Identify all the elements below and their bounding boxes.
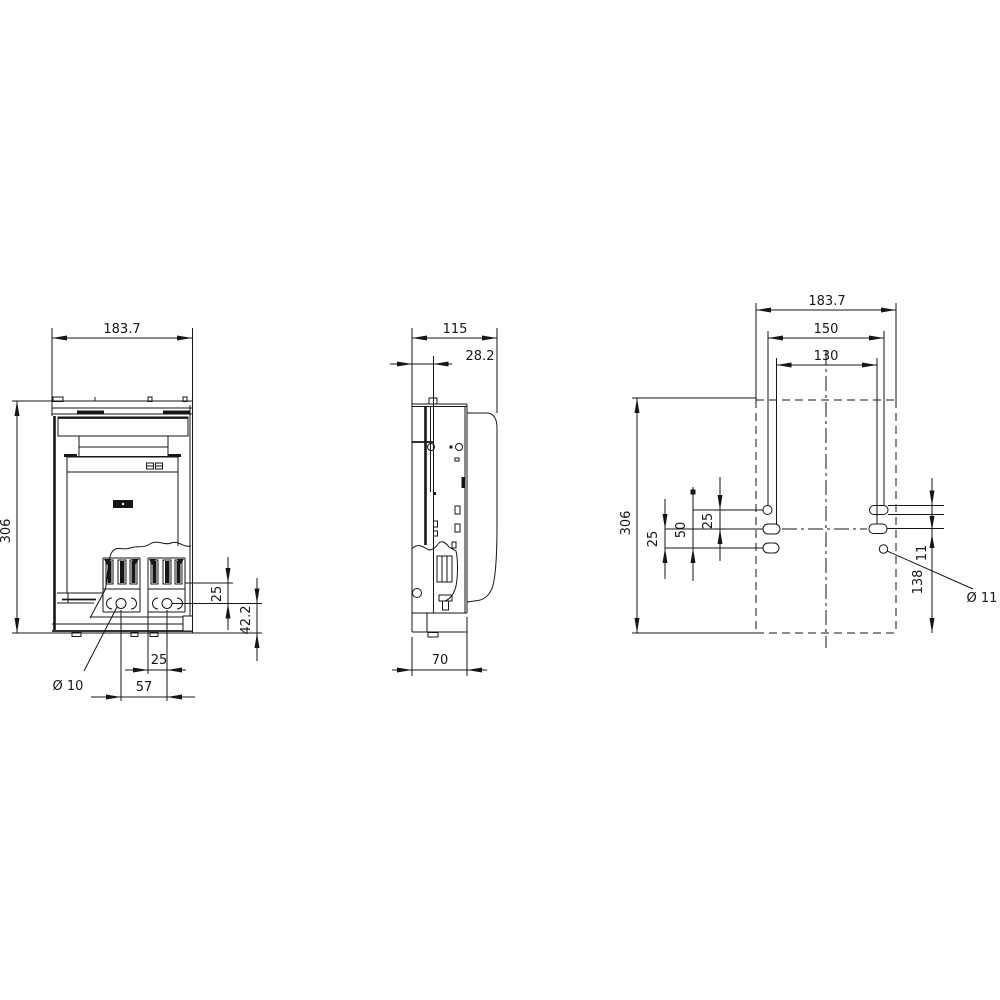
plan-dimensions: 183.7 150 130 306 [619,294,997,633]
side-view: 115 28.2 70 [390,322,497,676]
plan-pitch-outer-label: 150 [814,322,839,337]
plan-hole-dia-label: Ø 11 [967,591,998,606]
plan-bottom-offset-label: 138 [911,570,926,595]
side-front-offset-label: 28.2 [466,349,495,364]
plan-offset-lower-label: 25 [646,531,661,548]
plan-slot-bottom-left [763,543,779,553]
plan-slot-mid-right [869,524,887,534]
front-dimensions: 183.7 306 25 42.2 25 [0,322,262,701]
plan-hole-bottom-right [879,545,887,553]
drilling-plan: 183.7 150 130 306 [619,294,997,648]
plan-pitch-inner-label: 130 [814,349,839,364]
plan-hole-top-left [763,506,772,515]
plan-slot-mid-left [763,524,780,534]
front-fuse-terminal-left [103,558,140,612]
front-mounting-hole-right [162,599,172,609]
front-width-label: 183.7 [103,322,140,337]
front-hole-offset-label: 25 [151,653,168,668]
front-base-height-label: 42.2 [239,606,254,635]
plan-offset-mid-label: 50 [674,522,689,539]
front-mounting-hole-left [116,599,126,609]
plan-outline [632,350,896,648]
dimension-drawing: 183.7 306 25 42.2 25 [0,0,1000,1000]
front-view: 183.7 306 25 42.2 25 [0,322,262,701]
plan-width-label: 183.7 [808,294,845,309]
side-outline [412,398,497,637]
technical-drawing-page: 183.7 306 25 42.2 25 [0,0,1000,1000]
plan-slot-width-label: 11 [915,545,930,562]
plan-slot-top-right [870,506,889,515]
side-dimensions: 115 28.2 70 [390,322,497,676]
front-outline [12,397,193,633]
side-break-line [412,542,458,601]
front-height-label: 306 [0,519,14,544]
front-slot-offset-label: 25 [210,586,225,603]
plan-holes-right [869,506,888,554]
side-cover [467,413,497,602]
front-hole-pitch-label: 57 [136,680,153,695]
side-depth-label: 115 [443,322,468,337]
front-vent-icon [147,463,163,469]
plan-height-label: 306 [619,511,634,536]
front-hole-dia-label: Ø 10 [53,679,84,694]
plan-offset-upper-label: 25 [701,513,716,530]
plan-holes-left [763,506,780,554]
side-base-depth-label: 70 [432,653,449,668]
